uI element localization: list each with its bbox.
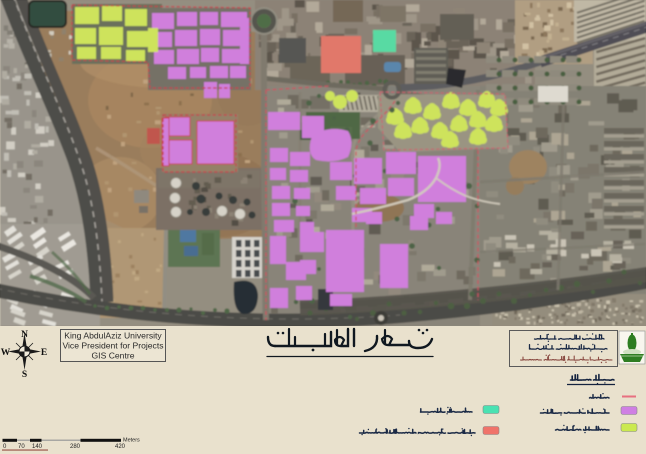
svg-text:Vice President for Projects: Vice President for Projects [62, 341, 163, 351]
svg-text:E: E [41, 348, 47, 358]
svg-text:N: N [21, 330, 28, 340]
svg-text:140: 140 [32, 444, 43, 450]
svg-text:Meters: Meters [123, 438, 140, 444]
svg-text:King AbdulAziz University: King AbdulAziz University [64, 331, 162, 341]
svg-text:70: 70 [18, 444, 25, 450]
svg-text:280: 280 [70, 444, 81, 450]
svg-text:420: 420 [115, 444, 126, 450]
svg-text:GIS Centre: GIS Centre [92, 351, 135, 361]
svg-text:S: S [22, 370, 27, 380]
svg-text:W: W [1, 348, 11, 358]
